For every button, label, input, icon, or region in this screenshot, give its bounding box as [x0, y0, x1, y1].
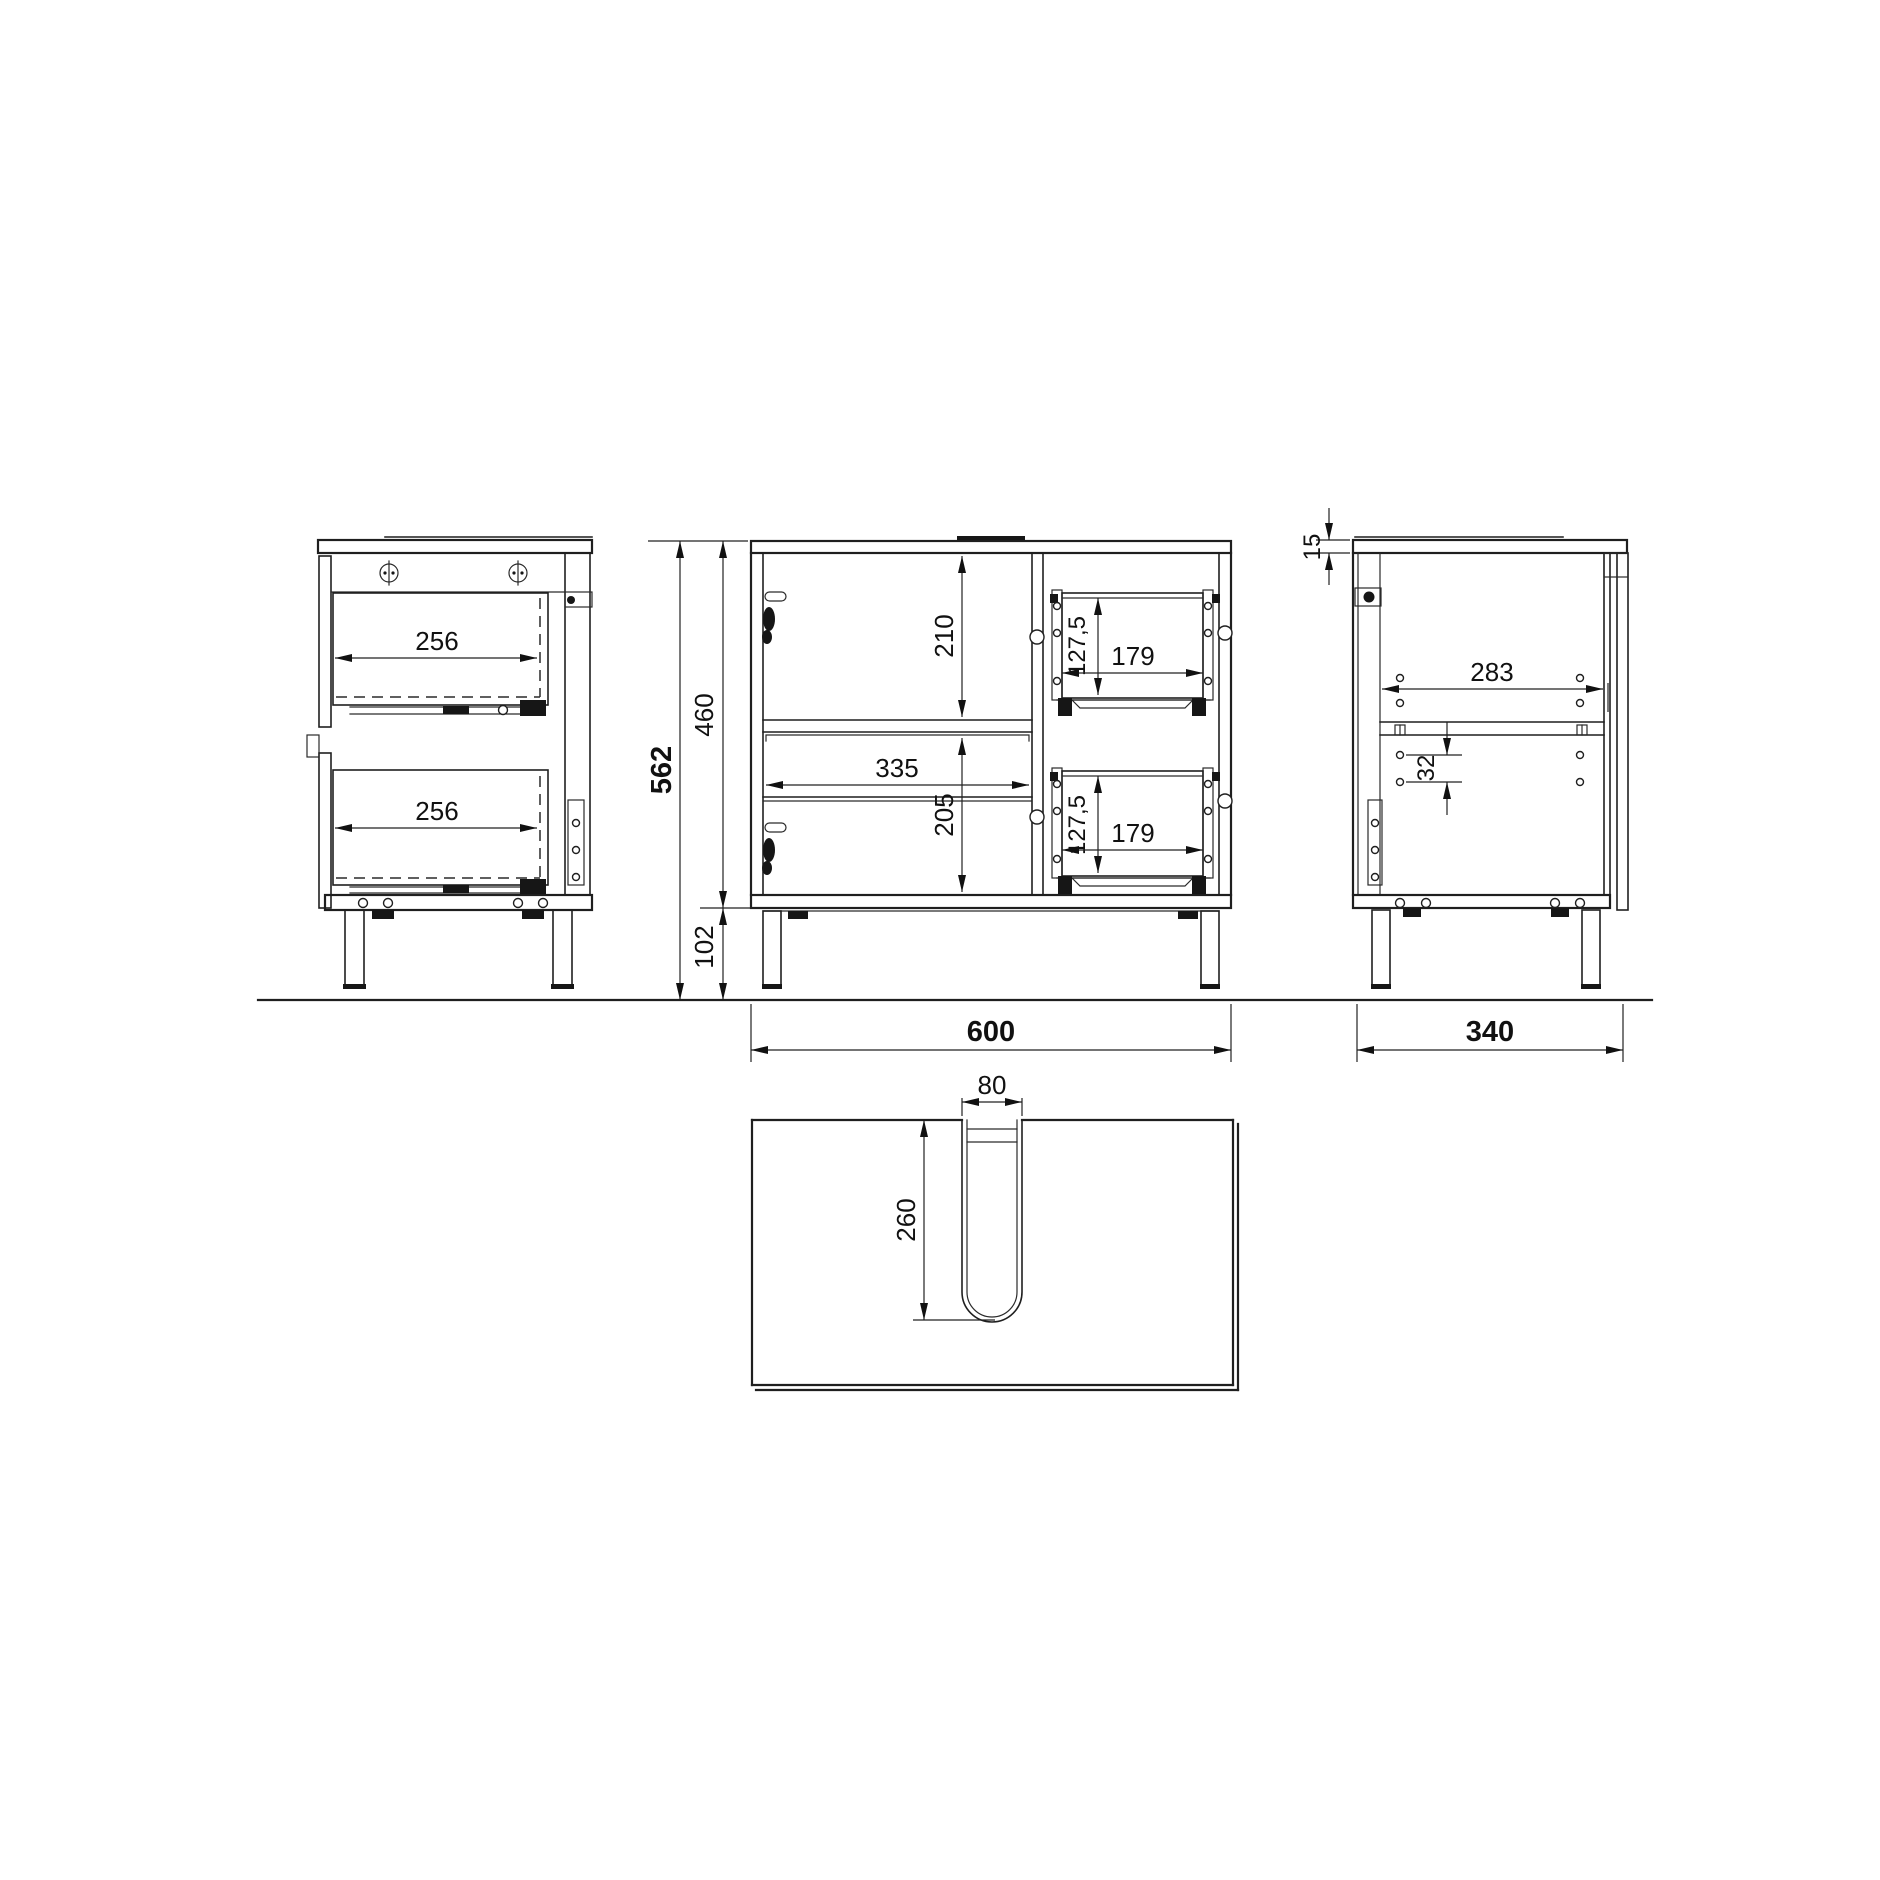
foot-bracket	[372, 910, 394, 919]
leg	[345, 910, 364, 988]
runner-block	[443, 885, 469, 893]
dim-overall-height: 562	[646, 746, 678, 794]
dim-upper-opening-height: 210	[929, 614, 959, 657]
dowel-hole	[1577, 675, 1584, 682]
leg-foot	[762, 984, 782, 989]
dowel-hole	[1397, 779, 1404, 786]
dim-overall-depth: 340	[1466, 1016, 1514, 1048]
dim-leg-height: 102	[689, 925, 719, 968]
back-hole	[1372, 874, 1379, 881]
dowel-hole	[1577, 779, 1584, 786]
bottom-panel	[1353, 895, 1610, 908]
drawing-page: 256 256	[0, 0, 1880, 1880]
top-drawer-assembly: 127,5 179	[1050, 590, 1220, 716]
top-panel	[318, 540, 592, 553]
back-hole-strip	[568, 800, 584, 885]
leg	[763, 911, 781, 988]
shelf-front-edge	[766, 735, 1029, 741]
foot-screw	[1576, 899, 1585, 908]
dowel-hole	[1397, 700, 1404, 707]
front-view: 210 335 205 127,5 179	[751, 536, 1232, 989]
dim-carcass-height: 460	[689, 693, 719, 736]
side-section-view: 256 256	[307, 537, 592, 989]
shelf-support	[1577, 725, 1587, 735]
dim-bottom-drawer-width: 179	[1111, 818, 1154, 848]
dim-top-panel-thickness: 15	[1299, 534, 1326, 561]
leg-foot	[551, 984, 574, 989]
leg	[1582, 910, 1600, 988]
hinge-pin-hole	[1030, 630, 1044, 644]
top-panel	[1353, 540, 1627, 553]
dim-cutout-width: 80	[978, 1070, 1007, 1100]
foot-screw	[1422, 899, 1431, 908]
back-hole	[1372, 820, 1379, 827]
bottom-panel	[751, 895, 1231, 908]
cam-screw-icon	[509, 561, 527, 585]
foot-screw	[539, 899, 548, 908]
hinge-pin-hole	[1218, 626, 1232, 640]
dim-bottom-drawer-depth: 256	[415, 796, 458, 826]
hinge-icon	[762, 823, 786, 875]
back-hole	[573, 820, 580, 827]
leg	[553, 910, 572, 988]
dim-interior-width: 335	[875, 753, 918, 783]
leg-foot	[1200, 984, 1220, 989]
runner-wheel	[499, 706, 508, 715]
hinge-pin-hole	[1218, 794, 1232, 808]
leg-foot	[1371, 984, 1391, 989]
back-hole	[1372, 847, 1379, 854]
cutout-inner	[967, 1120, 1017, 1317]
dim-back-rail-width: 283	[1470, 657, 1513, 687]
foot-bracket	[788, 911, 808, 919]
cutout-outer	[962, 1120, 1022, 1322]
wall-bracket-screw	[1364, 592, 1375, 603]
runner-bracket	[520, 700, 546, 716]
dim-cutout-depth: 260	[891, 1198, 921, 1241]
dim-bottom-drawer-height: 127,5	[1064, 795, 1091, 855]
dim-hole-spacing: 32	[1413, 755, 1440, 782]
foot-bracket	[1178, 911, 1198, 919]
cam-screw-icon	[380, 561, 398, 585]
foot-screw	[384, 899, 393, 908]
dim-lower-opening-height: 205	[929, 793, 959, 836]
dim-top-drawer-height: 127,5	[1064, 616, 1091, 676]
back-bracket-screw	[567, 596, 575, 604]
top-view: 80 260	[752, 1070, 1238, 1390]
top-panel	[751, 541, 1231, 553]
dowel-hole	[1397, 675, 1404, 682]
dowel-hole	[1397, 752, 1404, 759]
runner-block	[443, 706, 469, 714]
foot-screw	[1551, 899, 1560, 908]
foot-screw	[1396, 899, 1405, 908]
dim-top-drawer-width: 179	[1111, 641, 1154, 671]
foot-screw	[359, 899, 368, 908]
foot-bracket	[1551, 908, 1569, 917]
dim-top-drawer-depth: 256	[415, 626, 458, 656]
technical-drawing: 256 256	[0, 0, 1880, 1880]
lower-door-edge	[319, 753, 331, 908]
door-bracket	[307, 735, 319, 757]
hinge-pin-hole	[1030, 810, 1044, 824]
leg	[1201, 911, 1219, 988]
back-hole	[573, 874, 580, 881]
leg-foot	[1581, 984, 1601, 989]
dowel-hole	[1577, 700, 1584, 707]
right-side-view: 15 283 32	[1299, 508, 1628, 1062]
bottom-drawer-assembly: 127,5 179	[1050, 768, 1220, 894]
leg-foot	[343, 984, 366, 989]
foot-screw	[514, 899, 523, 908]
foot-bracket	[1403, 908, 1421, 917]
leg	[1372, 910, 1390, 988]
hinge-icon	[762, 592, 786, 644]
back-hole	[573, 847, 580, 854]
foot-bracket	[522, 910, 544, 919]
upper-door-edge	[319, 556, 331, 727]
shelf-support	[1395, 725, 1405, 735]
dowel-hole	[1577, 752, 1584, 759]
door-edge	[1617, 553, 1628, 910]
hinge-plate	[1604, 553, 1628, 577]
dim-overall-width: 600	[967, 1016, 1015, 1048]
runner-bracket	[520, 879, 546, 895]
